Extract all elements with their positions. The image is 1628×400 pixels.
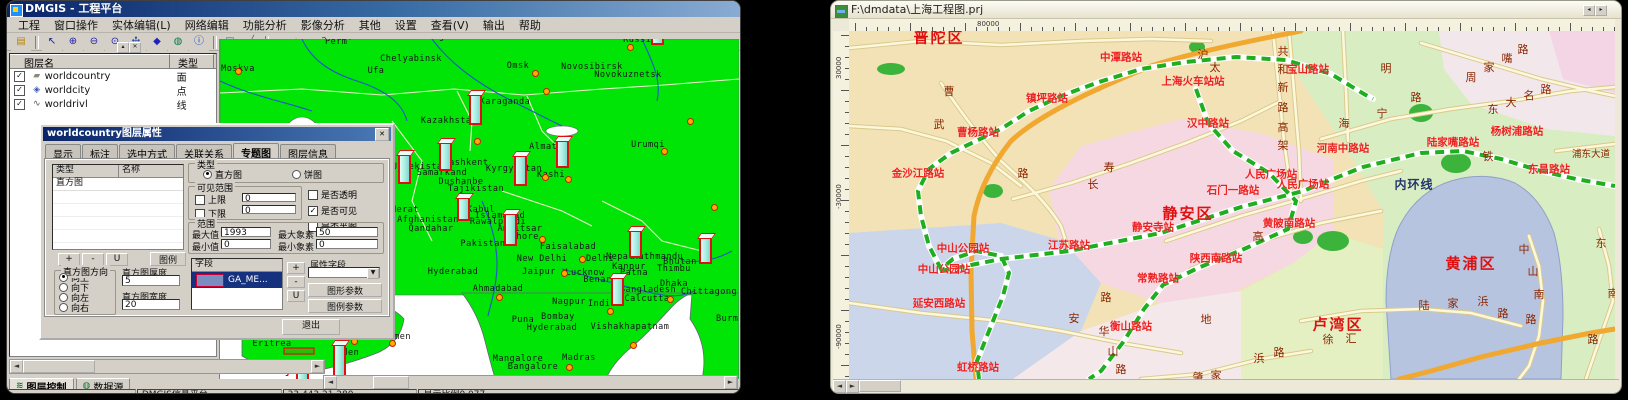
menu-工程[interactable]: 工程 <box>11 17 47 33</box>
layer-name[interactable]: worldrivl <box>45 99 167 110</box>
ruler-tick <box>1130 23 1131 31</box>
toolbar-separator <box>35 36 39 49</box>
ruler-tick <box>841 255 849 256</box>
list-column-type[interactable]: 类型 <box>53 165 119 177</box>
menu-帮助[interactable]: 帮助 <box>512 17 548 33</box>
min-label: 最小值 <box>192 240 219 253</box>
menu-网络编辑[interactable]: 网络编辑 <box>178 17 236 33</box>
window-title: DMGIS - 工程平台 <box>25 2 122 15</box>
app-icon <box>10 4 23 17</box>
layer-type-icon: ▰ <box>29 71 45 81</box>
status-cell <box>7 389 136 394</box>
histogram-bar <box>629 229 642 258</box>
histogram-bar <box>611 276 624 306</box>
histogram-bar <box>504 212 517 246</box>
scroll-right-icon[interactable]: ► <box>311 360 324 373</box>
upper-label: 上限 <box>208 193 226 206</box>
histogram-bar <box>556 139 569 168</box>
attr-field-select[interactable]: ▼ <box>308 267 380 278</box>
menu-影像分析[interactable]: 影像分析 <box>294 17 352 33</box>
ruler-label: -30000 <box>835 184 843 209</box>
legend-button[interactable]: 图例 <box>150 252 186 266</box>
ruler-tick <box>841 310 849 311</box>
select-arrow-icon[interactable]: ↖ <box>42 34 62 51</box>
layer-row-worldcountry[interactable]: ✓▰worldcountry面 <box>10 69 216 83</box>
group-label: 可见范围 <box>195 181 235 194</box>
dialog-tab-选中方式[interactable]: 选中方式 <box>119 144 175 159</box>
status-cell: 33.443,21.280 <box>283 389 418 394</box>
layer-visible-checkbox[interactable]: ✓ <box>14 85 25 96</box>
info-icon[interactable]: ⓘ <box>189 34 209 51</box>
width-input[interactable]: 20 <box>122 299 180 310</box>
field-name: GA_ME... <box>228 275 268 285</box>
field-selected-row[interactable]: GA_ME... <box>192 272 282 288</box>
checkbox-是否透明[interactable]: 是否透明 <box>308 188 357 201</box>
min-input[interactable]: 0 <box>221 239 271 249</box>
upper-input[interactable]: 0 <box>242 193 296 202</box>
histogram-bar <box>333 343 346 379</box>
minpx-label: 最小象素 <box>278 240 314 253</box>
menu-窗口操作[interactable]: 窗口操作 <box>47 17 105 33</box>
ruler-label: -90000 <box>835 324 843 349</box>
ruler-tick <box>1295 23 1296 31</box>
ruler-tick <box>1020 23 1021 31</box>
ruler-label: 30000 <box>835 57 843 79</box>
upper-checkbox[interactable] <box>195 195 205 205</box>
menu-查看(V)[interactable]: 查看(V) <box>424 17 476 33</box>
zoom-in-icon[interactable]: ⊕ <box>63 34 83 51</box>
avenue-labels: 浦东大道 <box>849 31 1615 379</box>
histogram-bar <box>699 236 712 264</box>
field-remove-button[interactable]: - <box>287 276 305 288</box>
ruler-tick <box>965 23 966 31</box>
close-icon[interactable]: ✕ <box>375 128 389 141</box>
column-layer-type[interactable]: 类型 <box>170 54 214 68</box>
layer-rows: ✓▰worldcountry面✓◈worldcity点✓∿worldrivl线 <box>10 69 216 111</box>
scroll-right-icon[interactable]: ► <box>724 376 737 389</box>
dialog-tab-显示[interactable]: 显示 <box>45 144 81 159</box>
status-bar: DMGIS信息平台33.443,21.280显示比例0.077 <box>7 389 740 394</box>
shanghai-map-window: F:\dmdata\上海工程图.prj ◂ ▸ 80000 30000-3000… <box>830 0 1622 394</box>
dialog-title: worldcountry图层属性 <box>47 128 162 139</box>
menu-bar: 工程窗口操作实体编辑(L)网络编辑功能分析影像分析其他设置查看(V)输出帮助 <box>7 17 740 33</box>
scroll-left-icon[interactable]: ◄ <box>324 376 337 389</box>
dialog-title-bar[interactable]: worldcountry图层属性 <box>43 127 391 141</box>
field-add-button[interactable]: + <box>287 262 305 274</box>
bottom-scrollbar[interactable]: ◄ ► <box>833 379 1619 392</box>
dialog-tab-专题图[interactable]: 专题图 <box>233 143 279 158</box>
polygon-icon[interactable]: ◆ <box>147 34 167 51</box>
ruler-tick <box>855 23 856 31</box>
histogram-bar <box>514 154 527 186</box>
histogram-bar <box>457 196 470 221</box>
layer-row-worldrivl[interactable]: ✓∿worldrivl线 <box>10 97 216 111</box>
max-input[interactable]: 1993 <box>221 227 271 237</box>
field-list[interactable]: 字段 GA_ME... <box>191 258 283 310</box>
scroll-right-icon[interactable]: ► <box>846 380 859 393</box>
field-header: 字段 <box>192 259 282 272</box>
menu-功能分析[interactable]: 功能分析 <box>236 17 294 33</box>
window-title: F:\dmdata\上海工程图.prj <box>851 3 983 16</box>
panel-hscrollbar[interactable]: ◄ ► <box>9 359 325 374</box>
prev-view-icon[interactable]: ◂ <box>1583 5 1595 16</box>
ruler-tick <box>1570 23 1571 31</box>
layer-row-worldcity[interactable]: ✓◈worldcity点 <box>10 83 216 97</box>
dialog-tab-标注[interactable]: 标注 <box>82 144 118 159</box>
menu-设置[interactable]: 设置 <box>388 17 424 33</box>
radio-向右[interactable]: 向右 <box>59 303 115 311</box>
thickness-input[interactable]: 5 <box>122 275 180 286</box>
dialog-tab-图层信息[interactable]: 图层信息 <box>280 144 336 159</box>
field-color-swatch <box>196 274 224 287</box>
list-column-name[interactable]: 名称 <box>119 165 183 177</box>
histogram-bar <box>469 93 482 125</box>
map-label: 浦东大道 <box>1572 146 1610 160</box>
group-label: 直方图方向 <box>61 265 110 278</box>
zoom-out-icon[interactable]: ⊖ <box>84 34 104 51</box>
scroll-left-icon[interactable]: ◄ <box>833 380 846 393</box>
ruler-tick <box>841 365 849 366</box>
ruler-tick <box>1460 23 1461 31</box>
globe-icon[interactable]: ◍ <box>168 34 188 51</box>
map-hscrollbar[interactable]: ◄ ► <box>323 375 738 390</box>
map-document-icon <box>835 5 848 18</box>
title-bar[interactable]: DMGIS - 工程平台 <box>7 1 740 17</box>
ruler-tick <box>1405 23 1406 31</box>
direction-radios: 向上向下向左向右 <box>55 273 115 311</box>
radio-pie[interactable]: 饼图 <box>292 170 322 178</box>
dialog-body: 类型 名称 直方图 + - U 图例 直方图方向 向上向下向左向右 直方图厚度 … <box>45 159 389 316</box>
lower-input[interactable]: 0 <box>242 205 296 214</box>
status-cell: DMGIS信息平台 <box>137 389 282 394</box>
layer-name[interactable]: worldcountry <box>45 71 167 82</box>
layer-type-icon: ◈ <box>29 85 45 95</box>
theme-list[interactable]: 类型 名称 直方图 <box>52 164 184 250</box>
ruler-tick <box>1185 23 1186 31</box>
maxpx-input[interactable]: 50 <box>316 227 378 237</box>
open-folder-icon[interactable]: ▤ <box>11 34 31 51</box>
chevron-down-icon[interactable]: ▼ <box>367 268 379 279</box>
exit-button[interactable]: 退出 <box>282 319 340 335</box>
graphic-params-button[interactable]: 图形参数 <box>308 283 382 297</box>
ruler-tick <box>910 23 911 31</box>
next-view-icon[interactable]: ▸ <box>1595 5 1607 16</box>
scroll-thumb[interactable] <box>373 376 409 389</box>
checkbox-是否可见[interactable]: ✓是否可见 <box>308 204 357 217</box>
layer-table-header: 图层名 类型 <box>10 54 216 69</box>
ruler-tick <box>1515 23 1516 31</box>
layer-visible-checkbox[interactable]: ✓ <box>14 99 25 110</box>
panel-restore-button[interactable]: ▴ <box>117 42 129 53</box>
menu-其他[interactable]: 其他 <box>352 17 388 33</box>
ruler-tick <box>841 90 849 91</box>
title-bar[interactable]: F:\dmdata\上海工程图.prj <box>831 1 1621 19</box>
histogram-bar <box>439 141 452 171</box>
dialog-tab-关联关系[interactable]: 关联关系 <box>176 144 232 159</box>
scroll-thumb[interactable] <box>23 360 95 373</box>
menu-输出[interactable]: 输出 <box>476 17 512 33</box>
scroll-thumb[interactable] <box>859 380 901 392</box>
ruler-tick <box>1240 23 1241 31</box>
layer-type: 面 <box>167 69 216 84</box>
type-group: 类型 直方图 饼图 <box>188 163 384 183</box>
dmgis-window: DMGIS - 工程平台 工程窗口操作实体编辑(L)网络编辑功能分析影像分析其他… <box>6 0 741 394</box>
menu-实体编辑(L)[interactable]: 实体编辑(L) <box>105 17 178 33</box>
radio-histogram[interactable]: 直方图 <box>203 170 242 178</box>
layer-name[interactable]: worldcity <box>45 85 167 96</box>
ruler-tick <box>841 35 849 36</box>
minpx-input[interactable]: 0 <box>316 239 378 249</box>
ruler-label: 80000 <box>977 20 999 28</box>
status-cell: 显示比例0.077 <box>418 389 739 394</box>
layer-type: 点 <box>167 83 216 98</box>
field-update-button[interactable]: U <box>287 290 305 302</box>
layer-visible-checkbox[interactable]: ✓ <box>14 71 25 82</box>
shanghai-map-view[interactable]: 中潭路站镇坪路站曹杨路站上海火车站站汉中路站宝山路站金沙江路站中山公园站中山公园… <box>849 31 1615 379</box>
histogram-bar <box>398 153 411 184</box>
column-layer-name[interactable]: 图层名 <box>10 54 170 68</box>
dialog-tabs: 显示标注选中方式关联关系专题图图层信息 <box>45 144 337 159</box>
vertical-ruler: 30000-30000-90000 <box>833 31 850 379</box>
ruler-tick <box>841 145 849 146</box>
ruler-tick <box>1350 23 1351 31</box>
toolbar-separator <box>213 36 217 49</box>
layer-type-icon: ∿ <box>29 99 45 109</box>
panel-close-button[interactable]: ✕ <box>129 42 141 53</box>
layer-properties-dialog: worldcountry图层属性 ✕ 显示标注选中方式关联关系专题图图层信息 类… <box>39 123 395 340</box>
ruler-tick <box>1075 23 1076 31</box>
scroll-left-icon[interactable]: ◄ <box>10 360 23 373</box>
histogram-direction-group: 直方图方向 向上向下向左向右 <box>54 270 116 315</box>
legend-params-button[interactable]: 图例参数 <box>308 299 382 313</box>
layer-type: 线 <box>167 97 216 112</box>
histogram-bar <box>651 39 664 45</box>
list-row[interactable]: 直方图 <box>53 178 183 191</box>
